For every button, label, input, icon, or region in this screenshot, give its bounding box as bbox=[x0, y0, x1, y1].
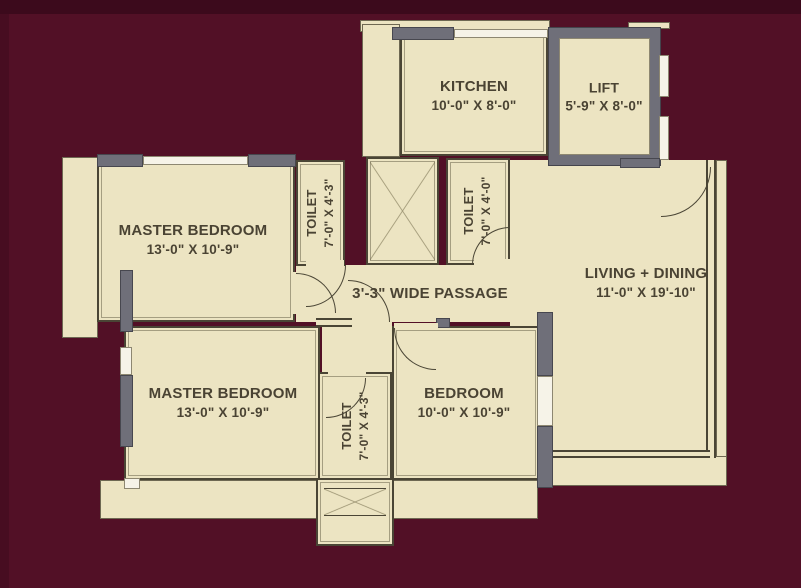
duct-shaft-bottom bbox=[316, 478, 394, 546]
toilet-2-label: TOILET 7'-0" X 4'-0" bbox=[460, 176, 494, 245]
bedroom-right-pillar-bottom bbox=[537, 426, 553, 488]
left-balcony-deck bbox=[62, 157, 98, 338]
passage-text: 3'-3" WIDE PASSAGE bbox=[352, 284, 508, 304]
mb1-window bbox=[143, 156, 248, 165]
master-bedroom-1-name: MASTER BEDROOM bbox=[119, 221, 268, 241]
mb1-top-pillar-left bbox=[97, 154, 143, 167]
floor-plan-canvas: KITCHEN 10'-0" X 8'-0" LIFT 5'-9" X 8'-0… bbox=[0, 0, 801, 588]
kitchen-name: KITCHEN bbox=[431, 77, 516, 97]
mb2-left-window bbox=[120, 347, 132, 375]
kitchen-window bbox=[454, 29, 548, 38]
toilet-1-dims: 7'-0" X 4'-3" bbox=[321, 178, 337, 247]
passage-bottom-wall bbox=[316, 318, 352, 327]
background-left-band bbox=[0, 14, 9, 588]
master-bedroom-1-label: MASTER BEDROOM 13'-0" X 10'-9" bbox=[119, 221, 268, 259]
bedroom-right-pillar-top bbox=[537, 312, 553, 376]
lift-door-jamb-bottom bbox=[659, 116, 669, 160]
kitchen-label: KITCHEN 10'-0" X 8'-0" bbox=[431, 77, 516, 115]
master-bedroom-2-dims: 13'-0" X 10'-9" bbox=[149, 404, 298, 422]
mb2-bottom-window bbox=[124, 478, 140, 489]
passage-label: 3'-3" WIDE PASSAGE bbox=[352, 284, 508, 304]
entrance-wall-pillar bbox=[620, 158, 660, 168]
toilet-3-door-opening bbox=[328, 369, 366, 376]
lift-name: LIFT bbox=[565, 78, 642, 97]
bedroom-label: BEDROOM 10'-0" X 10'-9" bbox=[418, 384, 511, 422]
living-lower-deck bbox=[552, 456, 727, 486]
living-bottom-wall bbox=[552, 450, 710, 458]
mb2-left-pillar-top bbox=[120, 270, 133, 332]
lift-dims: 5'-9" X 8'-0" bbox=[565, 97, 642, 115]
duct-x-band bbox=[324, 488, 386, 516]
mb2-left-pillar-bottom bbox=[120, 375, 133, 447]
toilet-2-name: TOILET bbox=[460, 176, 478, 245]
bedroom-dims: 10'-0" X 10'-9" bbox=[418, 404, 511, 422]
kitchen-dims: 10'-0" X 8'-0" bbox=[431, 97, 516, 115]
kitchen-side-strip bbox=[362, 24, 400, 157]
living-dining-label: LIVING + DINING 11'-0" X 19'-10" bbox=[585, 264, 708, 302]
toilet-1-label: TOILET 7'-0" X 4'-3" bbox=[303, 178, 337, 247]
right-ledge bbox=[716, 160, 727, 459]
toilet-1-name: TOILET bbox=[303, 178, 321, 247]
master-bedroom-2-label: MASTER BEDROOM 13'-0" X 10'-9" bbox=[149, 384, 298, 422]
master-bedroom-2-name: MASTER BEDROOM bbox=[149, 384, 298, 404]
bedroom-right-window bbox=[537, 376, 553, 426]
living-dining-name: LIVING + DINING bbox=[585, 264, 708, 284]
background-top-band bbox=[0, 0, 801, 14]
toilet-lobby-area bbox=[322, 322, 392, 372]
lift-door-jamb-top bbox=[659, 55, 669, 97]
bedroom-name: BEDROOM bbox=[418, 384, 511, 404]
master-bedroom-1-dims: 13'-0" X 10'-9" bbox=[119, 241, 268, 259]
living-right-wall bbox=[706, 160, 716, 458]
lift-label: LIFT 5'-9" X 8'-0" bbox=[565, 78, 642, 115]
mb1-top-pillar-right bbox=[248, 154, 296, 167]
kitchen-top-pillar bbox=[392, 27, 454, 40]
toilet-3-label: TOILET 7'-0" X 4'-3" bbox=[338, 391, 372, 460]
toilet-3-dims: 7'-0" X 4'-3" bbox=[356, 391, 372, 460]
toilet-2-dims: 7'-0" X 4'-0" bbox=[478, 176, 494, 245]
duct-shaft-top bbox=[366, 157, 439, 265]
bedroom-door-jamb bbox=[436, 318, 450, 328]
living-dining-dims: 11'-0" X 19'-10" bbox=[585, 284, 708, 302]
toilet-3-name: TOILET bbox=[338, 391, 356, 460]
